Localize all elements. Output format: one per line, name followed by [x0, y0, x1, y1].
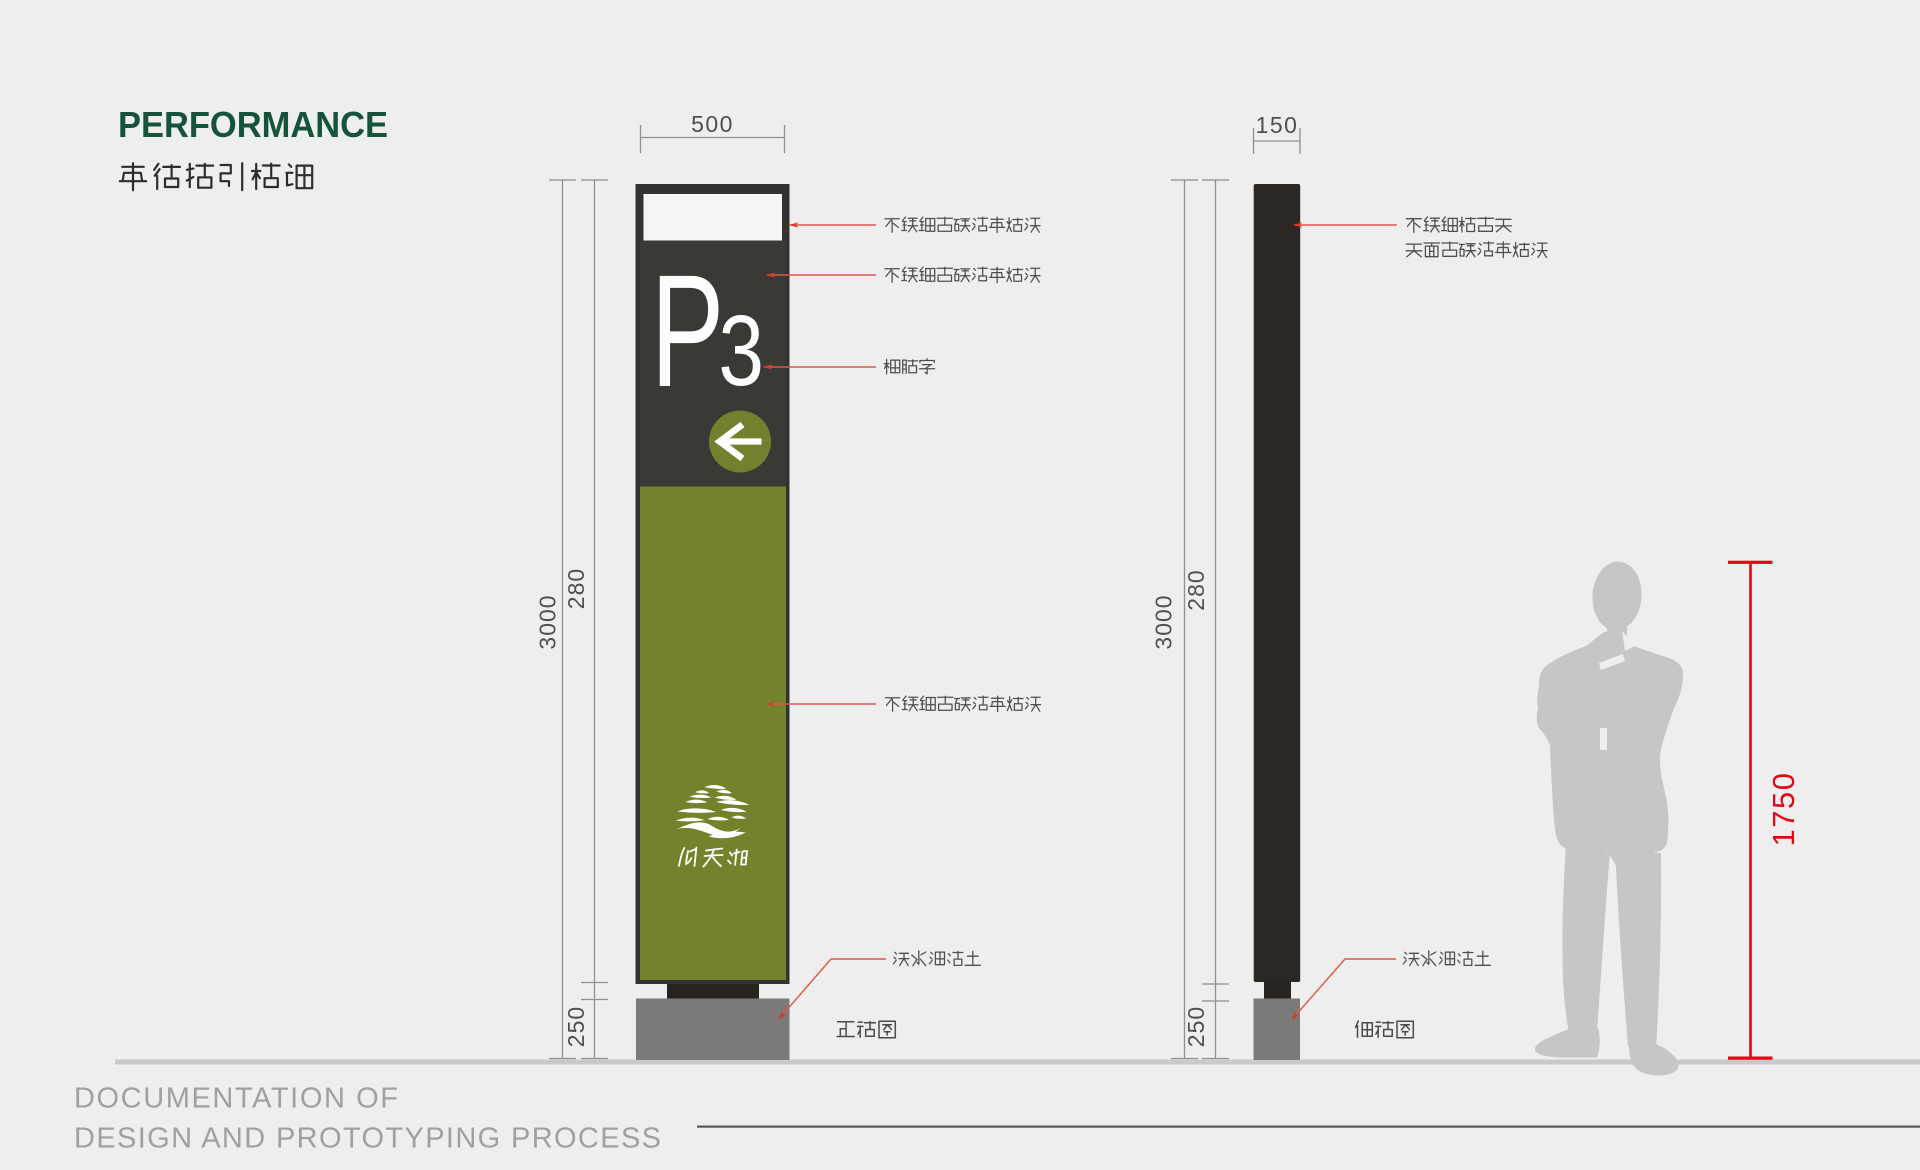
- svg-text:1750: 1750: [1766, 772, 1801, 847]
- svg-text:DESIGN AND PROTOTYPING PROCESS: DESIGN AND PROTOTYPING PROCESS: [74, 1123, 661, 1155]
- svg-text:3000: 3000: [535, 594, 561, 649]
- svg-text:250: 250: [1183, 1006, 1209, 1047]
- svg-text:3: 3: [718, 295, 764, 407]
- svg-text:500: 500: [691, 111, 734, 137]
- svg-text:P: P: [651, 243, 725, 421]
- svg-text:150: 150: [1256, 112, 1299, 138]
- svg-text:3000: 3000: [1151, 594, 1177, 649]
- svg-text:280: 280: [1183, 569, 1209, 610]
- svg-text:280: 280: [563, 568, 589, 609]
- svg-text:250: 250: [563, 1006, 589, 1047]
- svg-text:PERFORMANCE: PERFORMANCE: [118, 104, 388, 145]
- svg-text:DOCUMENTATION OF: DOCUMENTATION OF: [74, 1083, 398, 1115]
